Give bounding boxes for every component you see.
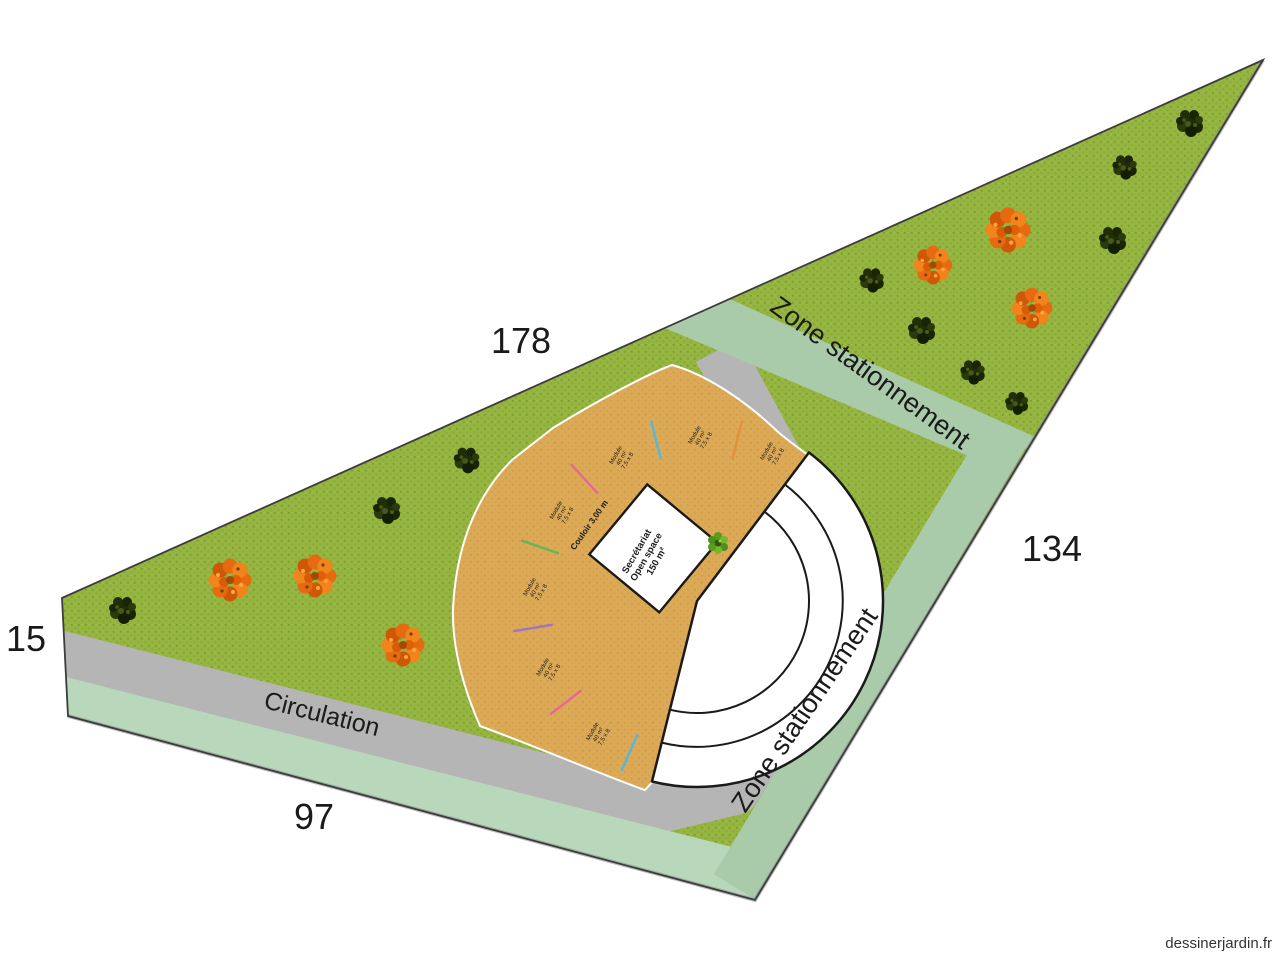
dimension-bottom: 97 <box>294 796 334 837</box>
dimension-top: 178 <box>491 320 551 361</box>
orange-tree-icon <box>382 624 425 667</box>
plot <box>0 0 1280 960</box>
dimension-left: 15 <box>6 618 46 659</box>
garden-plan-svg: Couloir 3,00 m Secrétariat Open space 15… <box>0 0 1280 960</box>
garden-plan-canvas: Couloir 3,00 m Secrétariat Open space 15… <box>0 0 1280 960</box>
orange-tree-icon <box>914 246 953 285</box>
dimension-right: 134 <box>1022 528 1082 569</box>
orange-tree-icon <box>294 555 337 598</box>
orange-tree-icon <box>209 559 252 602</box>
watermark: dessinerjardin.fr <box>1165 935 1272 952</box>
orange-tree-icon <box>1012 288 1053 329</box>
orange-tree-icon <box>985 207 1030 252</box>
